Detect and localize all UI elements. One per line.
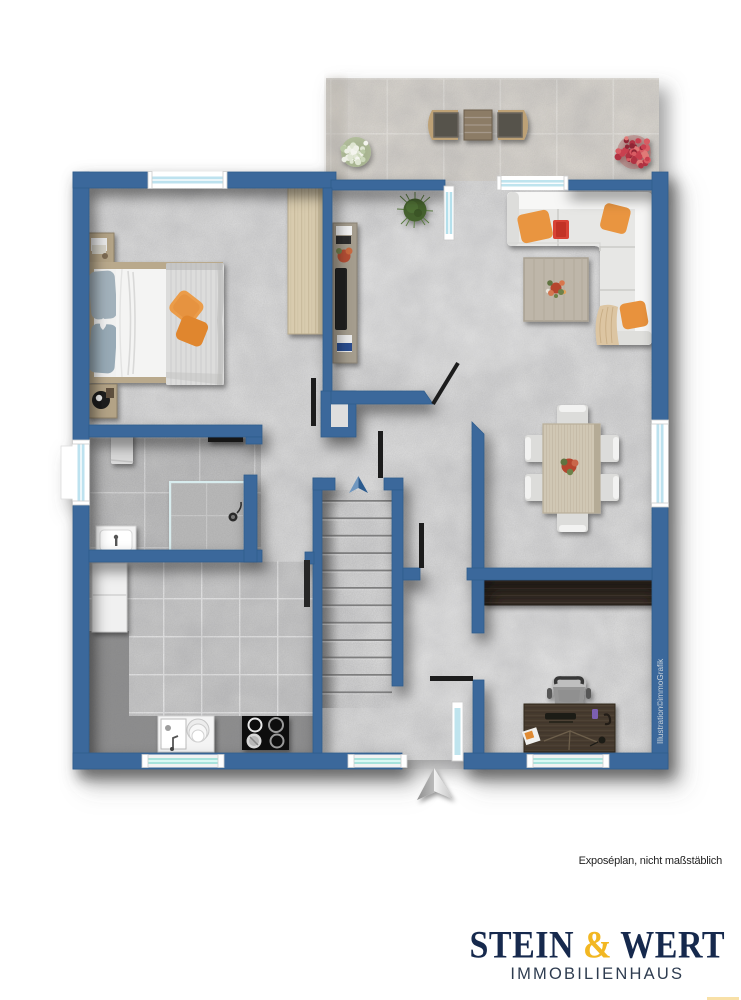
svg-text:Illustration©immoGrafik: Illustration©immoGrafik bbox=[656, 658, 665, 744]
